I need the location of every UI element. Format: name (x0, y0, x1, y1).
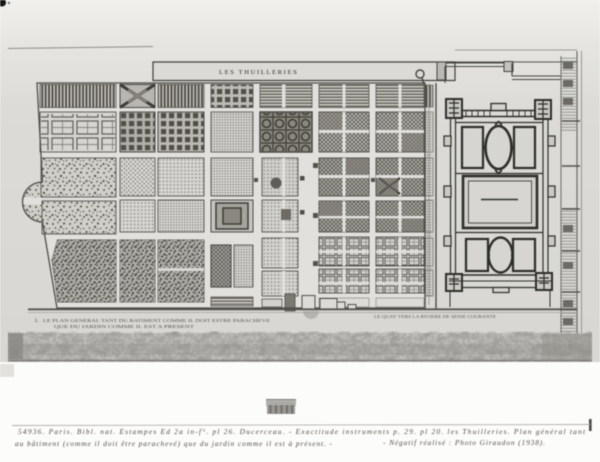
svg-text:L: L (35, 319, 38, 324)
svg-text:- Négatif réalisé : Photo Gira: - Négatif réalisé : Photo Giraudon (1938… (383, 438, 545, 447)
svg-text:QUE DU IARDIN COMME IL EST A P: QUE DU IARDIN COMME IL EST A PRESENT (54, 324, 195, 329)
svg-text:LE QUAY VERS LA RIVIERE DE SEI: LE QUAY VERS LA RIVIERE DE SEINE COURANT… (374, 315, 497, 319)
svg-text:LE PLAN GENERAL TANT DU BATIME: LE PLAN GENERAL TANT DU BATIMENT COMME I… (43, 318, 271, 323)
svg-text:LES THUILLERIES: LES THUILLERIES (219, 69, 298, 76)
svg-text:54936. Paris. Bibl. nat. Estam: 54936. Paris. Bibl. nat. Estampes Ed 2a … (18, 427, 586, 436)
svg-text:au bâtiment (comme il doit êtr: au bâtiment (comme il doit être parachev… (15, 439, 333, 448)
